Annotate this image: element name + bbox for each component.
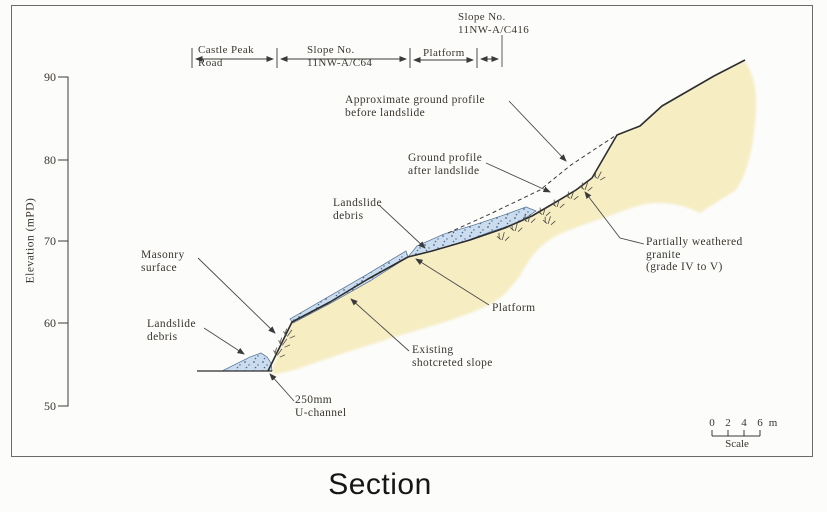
section-diagram: Elevation (mPD) 90 80 70 60 50 Castle Pe… [0, 0, 827, 512]
dim-label-slope-c64: Slope No. 11NW-A/C64 [307, 44, 372, 70]
axis-tick-90: 90 [38, 70, 56, 84]
scalebar-tick-2: 2 [723, 417, 733, 429]
label-masonry-surface: Masonry surface [141, 249, 185, 274]
page-title: Section [290, 468, 470, 502]
drawing-frame [11, 5, 813, 457]
dim-label-slope-c416: Slope No. 11NW-A/C416 [458, 11, 529, 37]
scalebar-tick-0: 0 [707, 417, 717, 429]
dim-label-castle-peak-road: Castle Peak Road [198, 44, 254, 70]
axis-tick-60: 60 [38, 316, 56, 330]
scalebar-label: Scale [710, 438, 764, 450]
axis-tick-70: 70 [38, 234, 56, 248]
label-approx-ground-profile: Approximate ground profile before landsl… [345, 94, 485, 119]
scalebar-tick-4: 4 [739, 417, 749, 429]
label-250mm-uchannel: 250mm U-channel [295, 394, 347, 419]
axis-tick-50: 50 [38, 399, 56, 413]
label-landslide-debris-low: Landslide debris [147, 318, 196, 343]
label-ground-profile-after: Ground profile after landslide [408, 152, 482, 177]
dim-label-platform: Platform [423, 47, 465, 60]
axis-tick-80: 80 [38, 153, 56, 167]
label-landslide-debris-mid: Landslide debris [333, 197, 382, 222]
scalebar-tick-6: 6 [755, 417, 765, 429]
label-existing-shotcreted-slope: Existing shotcreted slope [412, 344, 493, 369]
scalebar-unit: m [768, 417, 778, 429]
label-platform-slope: Platform [492, 302, 535, 315]
label-partially-weathered-granite: Partially weathered granite (grade IV to… [646, 236, 743, 274]
